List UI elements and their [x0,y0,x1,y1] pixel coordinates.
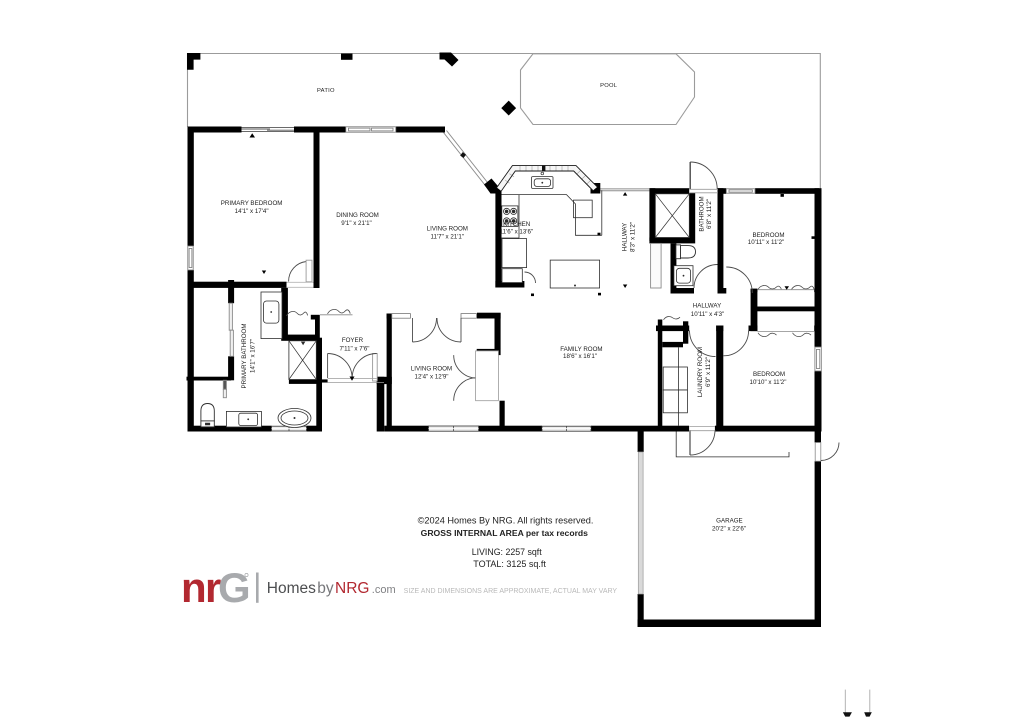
svg-text:10'11" x 11'2": 10'11" x 11'2" [748,239,784,246]
svg-text:20'2" x 22'6": 20'2" x 22'6" [712,526,746,533]
svg-text:12'4" x 12'9": 12'4" x 12'9" [415,373,449,380]
svg-text:PRIMARY BATHROOM: PRIMARY BATHROOM [241,324,248,389]
svg-text:14'1" x 16'7": 14'1" x 16'7" [250,339,257,373]
svg-text:GROSS INTERNAL AREA per tax re: GROSS INTERNAL AREA per tax records [421,528,589,538]
svg-text:11'6" x 13'6": 11'6" x 13'6" [500,228,533,235]
svg-text:9'1" x 21'1": 9'1" x 21'1" [341,220,372,227]
svg-text:BEDROOM: BEDROOM [753,232,785,239]
svg-text:FOYER: FOYER [342,337,364,344]
svg-text:10'10" x 11'2": 10'10" x 11'2" [750,379,787,386]
svg-text:by: by [317,580,334,597]
svg-text:LIVING ROOM: LIVING ROOM [411,366,452,373]
svg-text:SIZE AND DIMENSIONS ARE APPROX: SIZE AND DIMENSIONS ARE APPROXIMATE, ACT… [404,588,618,595]
svg-text:G: G [218,564,251,611]
svg-text:14'1" x 17'4": 14'1" x 17'4" [235,208,269,215]
svg-text:KITCHEN: KITCHEN [503,221,530,228]
svg-text:PATIO: PATIO [317,88,335,94]
svg-text:BATHROOM: BATHROOM [698,196,705,231]
svg-text:HALLWAY: HALLWAY [622,223,629,251]
svg-text:6'8" x 11'2": 6'8" x 11'2" [706,199,713,229]
svg-text:7'11" x 7'6": 7'11" x 7'6" [339,346,369,353]
svg-text:8'3" x 11'2": 8'3" x 11'2" [630,222,637,252]
svg-text:n: n [181,564,205,611]
svg-text:NRG: NRG [335,580,369,597]
svg-text:POOL: POOL [600,83,618,89]
svg-text:GARAGE: GARAGE [716,518,742,525]
svg-text:11'7" x 21'1": 11'7" x 21'1" [431,233,464,240]
svg-text:.com: .com [372,584,396,596]
svg-text:PRIMARY BEDROOM: PRIMARY BEDROOM [221,200,283,207]
svg-text:Homes: Homes [267,580,316,597]
svg-text:DINING ROOM: DINING ROOM [336,212,379,219]
svg-text:FAMILY ROOM: FAMILY ROOM [560,346,602,353]
svg-text:©2024 Homes By NRG. All rights: ©2024 Homes By NRG. All rights reserved. [418,516,594,526]
svg-text:LIVING ROOM: LIVING ROOM [427,225,468,232]
svg-text:TOTAL: 3125 sq.ft: TOTAL: 3125 sq.ft [473,559,546,569]
svg-text:BEDROOM: BEDROOM [753,371,785,378]
svg-text:LIVING: 2257 sqft: LIVING: 2257 sqft [472,547,542,557]
svg-text:6'9" x 11'2": 6'9" x 11'2" [705,357,712,387]
svg-text:10'11" x 4'3": 10'11" x 4'3" [691,311,724,318]
svg-text:18'6" x 16'1": 18'6" x 16'1" [563,353,597,360]
svg-text:HALLWAY: HALLWAY [693,303,721,310]
svg-text:LAUNDRY ROOM: LAUNDRY ROOM [697,347,704,397]
